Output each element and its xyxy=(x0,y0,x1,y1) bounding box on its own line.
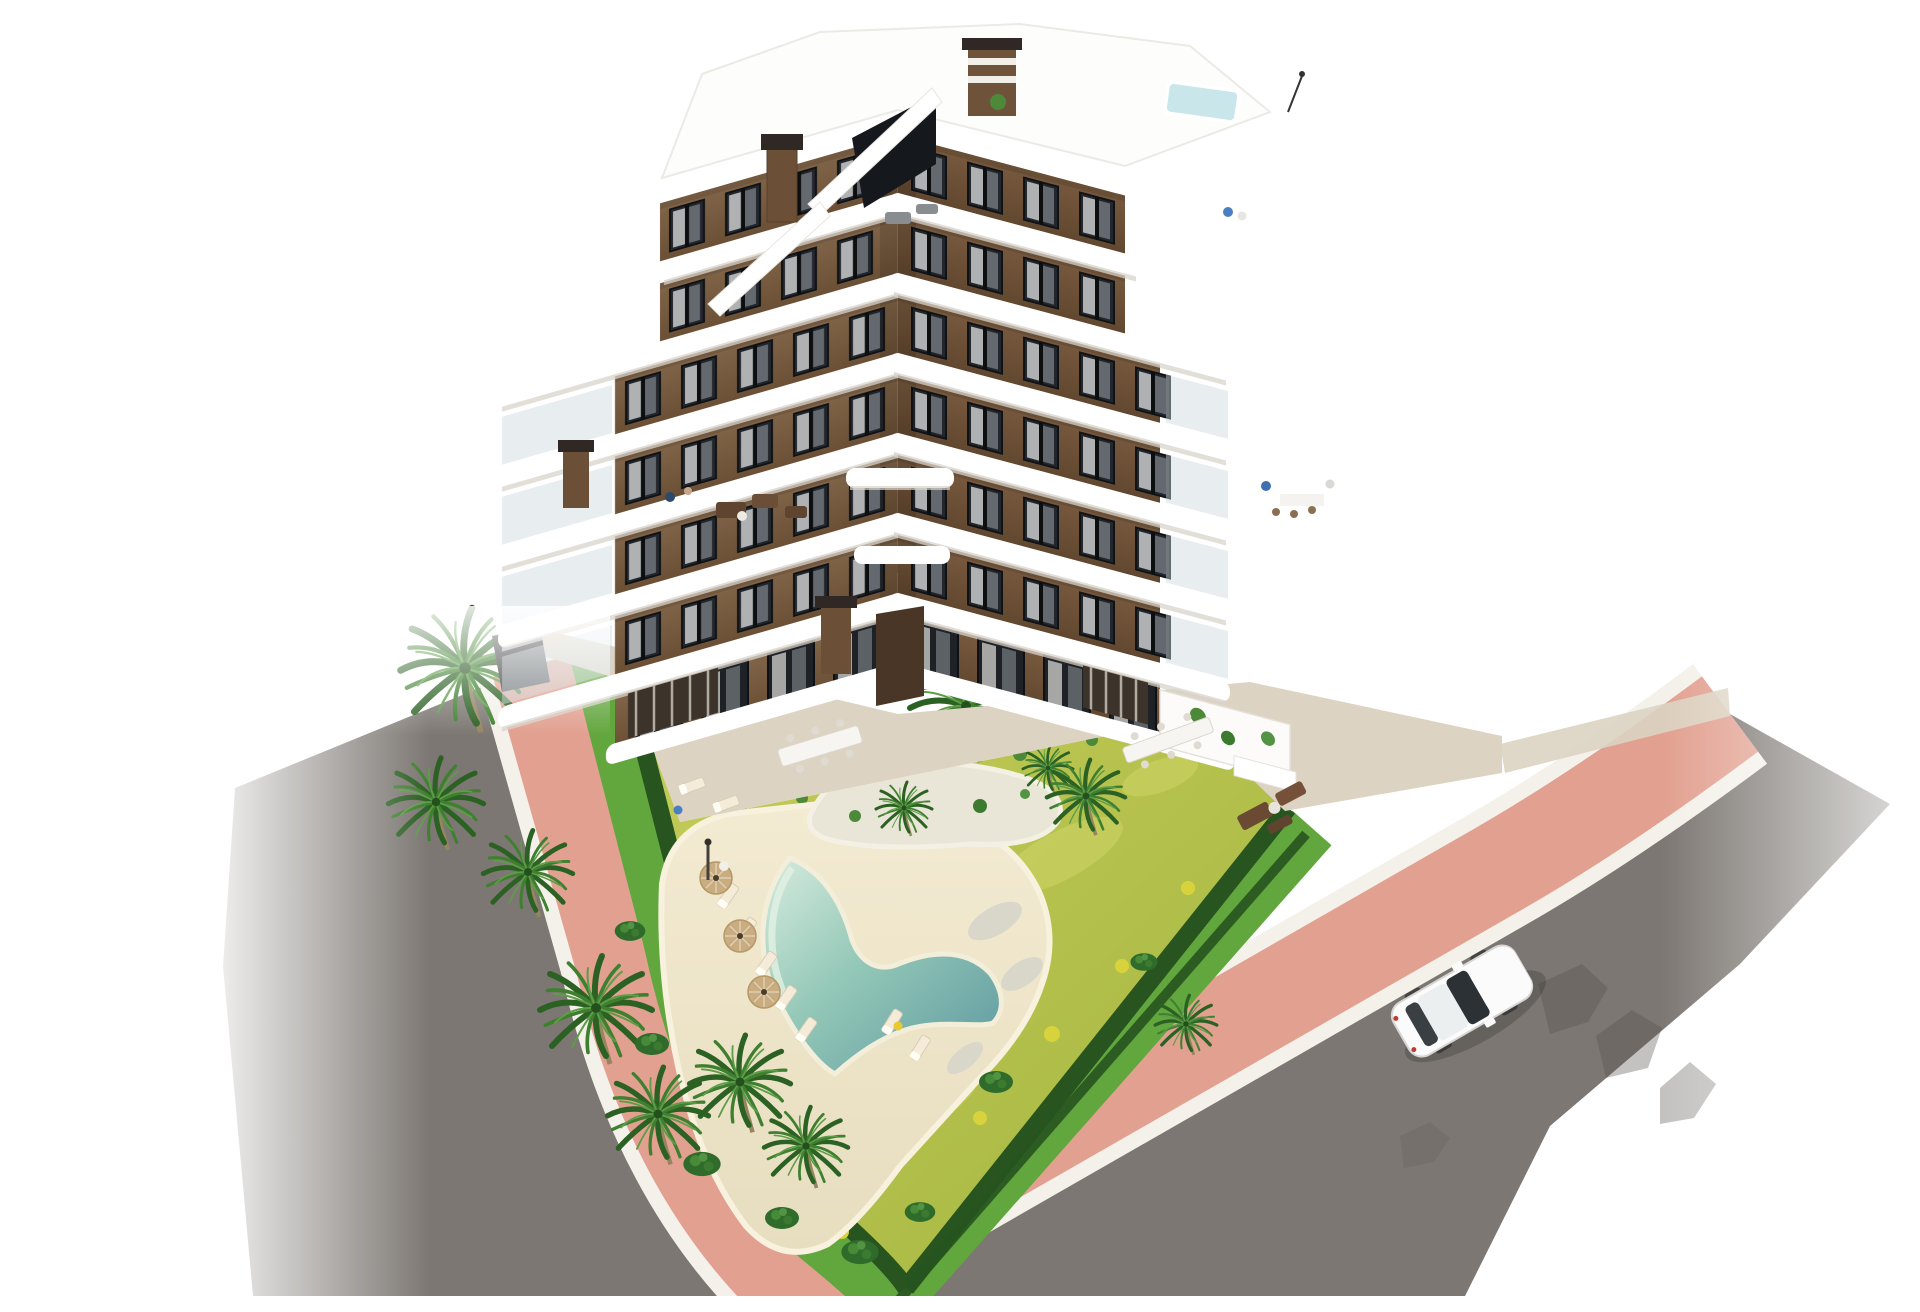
roof-plant xyxy=(990,94,1006,110)
chimney-centre-terrace xyxy=(815,596,857,674)
render-canvas xyxy=(40,16,1920,1296)
beach-towel xyxy=(894,1022,903,1031)
chimney-mid-terrace xyxy=(558,440,594,508)
person-at-pool xyxy=(719,861,729,871)
chimney-left xyxy=(761,134,803,222)
architectural-render xyxy=(40,16,1920,1296)
